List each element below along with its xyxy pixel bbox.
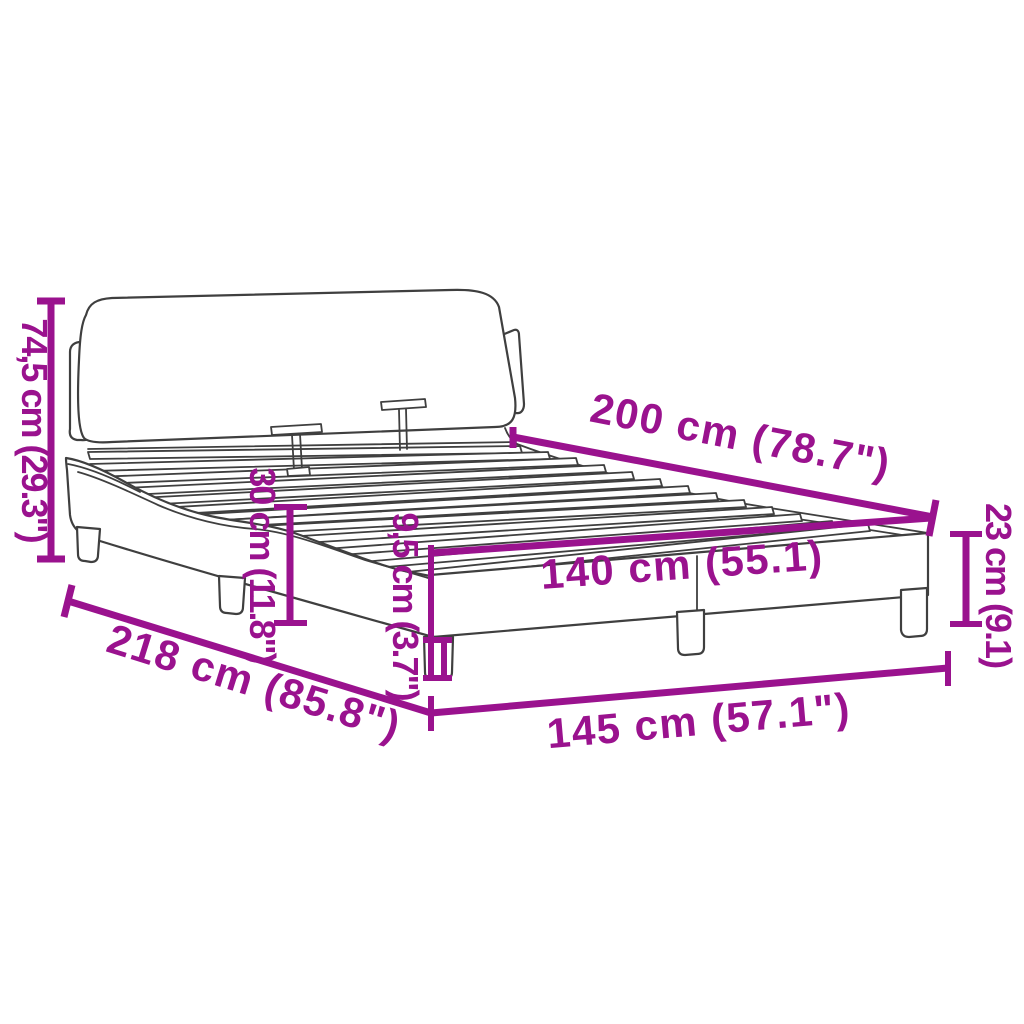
- dimension-label-base-height: 23 cm (9.1): [978, 503, 1019, 668]
- leg-back-left: [77, 527, 100, 562]
- dimension-headboard-height: 74,5 cm (29.3"): [14, 301, 65, 559]
- bed-dimension-diagram: 74,5 cm (29.3") 200 cm (78.7") 140 cm (5…: [0, 0, 1024, 1024]
- post-foot: [287, 467, 310, 476]
- diagram-canvas: 74,5 cm (29.3") 200 cm (78.7") 140 cm (5…: [0, 0, 1024, 1024]
- leg-side-left: [219, 576, 245, 614]
- dimension-label-base-rail-height: 9,5 cm (3.7"): [385, 512, 426, 700]
- dimension-label-outer-width: 145 cm (57.1"): [545, 684, 853, 757]
- dimension-label-headboard-height: 74,5 cm (29.3"): [14, 318, 55, 542]
- dimension-outer-width: 145 cm (57.1"): [431, 651, 948, 757]
- dimension-label-rail-height: 30 cm (11.8"): [242, 467, 283, 663]
- leg-foot-right: [901, 588, 927, 637]
- post-plate: [381, 399, 426, 410]
- leg-foot-center: [677, 610, 704, 655]
- post-plate: [271, 424, 322, 435]
- bed-frame-drawing: [66, 290, 928, 679]
- headboard-cushion: [78, 290, 515, 443]
- dimension-base-height: 23 cm (9.1): [950, 503, 1019, 668]
